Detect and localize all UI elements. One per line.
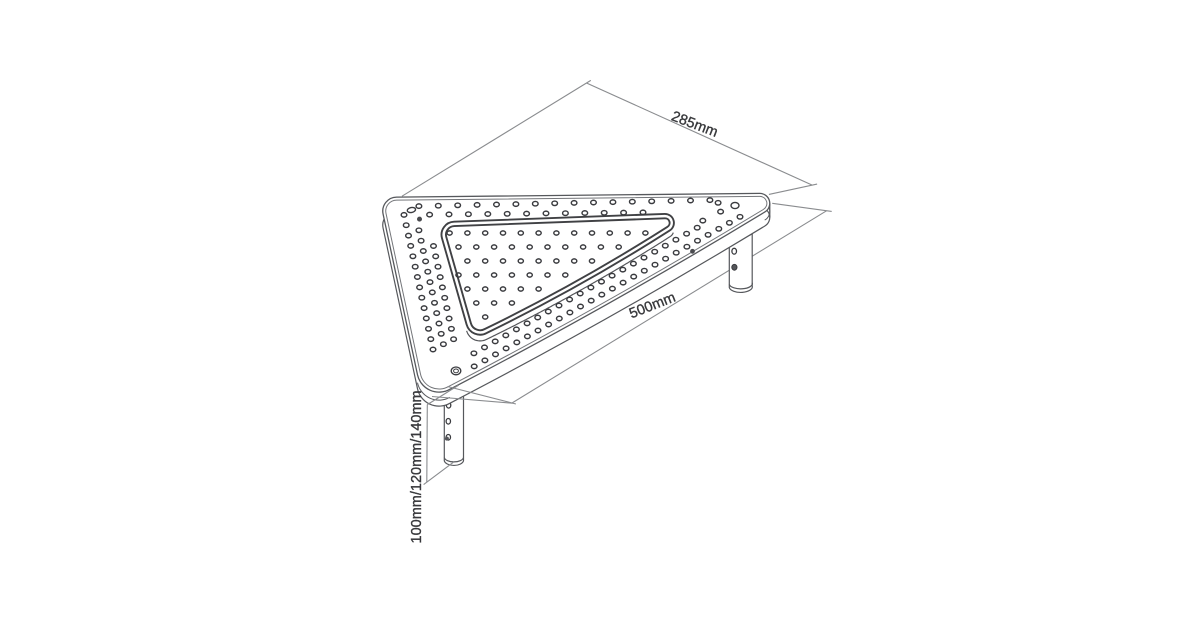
svg-text:100mm/120mm/140mm: 100mm/120mm/140mm (409, 390, 425, 543)
